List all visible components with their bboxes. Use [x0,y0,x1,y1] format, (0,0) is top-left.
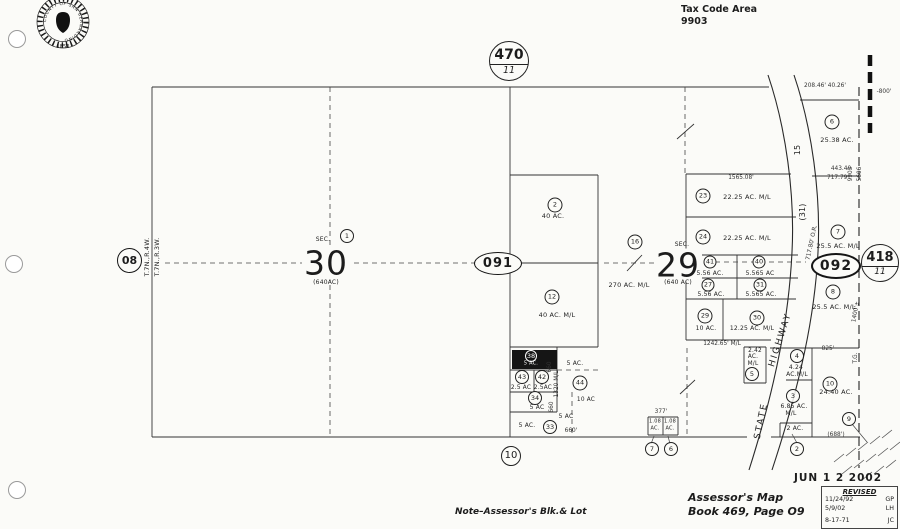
revision-entry: 5/9/02 LH [825,505,894,514]
area-label: AC.M/L [786,372,808,378]
punch-hole [5,255,23,273]
parcel-number-circle: 24 [696,230,711,245]
dimension-label: 825' [822,347,835,353]
revision-initials: JC [888,517,894,526]
map-ref-418-11: 418 11 [861,244,899,282]
parcel-number-circle: 34 [528,391,542,405]
dimension-label: 717.79' [827,176,849,182]
area-label: AC. [650,427,659,432]
assessor-map-title: Assessor's Map Book 469, Page O9 [688,491,805,520]
parcel-number-circle: 41 [704,256,717,269]
parcel-number-circle: 43 [515,370,529,384]
punch-hole [8,481,26,499]
area-label: 2 AC. [787,426,804,432]
parcel-number-circle: 8 [826,285,841,300]
revision-header: REVISED [825,488,894,496]
map-ref-book: 470 [490,47,527,65]
revision-date: 11/24/92 [825,496,853,505]
parcel-number-circle: 2 [790,442,804,456]
area-label: 5 AC. [519,423,536,429]
parcel-number-circle: 33 [543,420,557,434]
area-label: 10 AC. [696,326,717,332]
flag-091: 091 [474,252,522,275]
parcel-number-circle: 6 [825,115,840,130]
sec-label-30: SEC. [316,237,331,243]
revision-initials: LH [886,505,894,514]
dimension-label: 660 [550,401,556,412]
tax-code-value: 9903 [681,16,757,28]
map-ref-page: 11 [874,267,885,277]
section-30-acreage: (640AC) [313,280,339,286]
parcel-number-circle: 23 [696,189,711,204]
dimension-label: 377' [655,410,668,416]
area-label: 5.56 AC. [698,292,725,298]
revision-entry: 11/24/92 GP [825,496,894,505]
map-title-line2: Book 469, Page O9 [688,505,805,519]
parcel-number-circle: 6 [664,442,678,456]
tax-area-west: 9903 [849,167,855,182]
parcel-number-circle: 16 [628,235,643,250]
parcel-number-circle: 7 [831,225,846,240]
revision-date: 5/9/02 [825,505,845,514]
tax-area-east: 5606 [858,167,864,182]
dimension-label: 660 [548,361,554,372]
revision-box: REVISED 11/24/92 GP 5/9/02 LH 8-17-71 JC [821,486,898,529]
area-label: 270 AC. M/L [608,282,649,289]
dimension-label: -800' [877,90,892,96]
area-label: 25.5 AC. M/L [812,304,855,311]
area-label: 5.56 AC. [697,271,724,277]
parcel-number-circle: 31 [754,279,767,292]
parcel-number-circle: 40 [753,256,766,269]
area-label: 5.565 AC. [746,292,777,298]
parcel-number-circle: 12 [545,290,560,305]
tax-code-label: Tax Code Area [681,4,757,16]
highway-route-31: (31) [799,203,807,220]
area-label: 1.08 [664,420,676,425]
dim-1242: 1242.65' M/L [703,342,741,348]
dimension-label: (688') [827,433,844,439]
map-ref-page: 11 [503,65,515,76]
parcel-number-circle: 9 [842,412,856,426]
area-label: 25.38 AC. [820,137,853,144]
punch-hole [8,30,26,48]
area-label: M/L [785,411,796,417]
area-label: 1.08 [649,420,661,425]
block-10-circle: 10 [501,446,521,466]
area-label: 10 AC [577,398,595,404]
township-range-east: T.7N.,R.3W. [154,238,161,277]
parcel-number-circle: 30 [750,311,765,326]
map-ref-08: 08 [117,248,142,273]
revision-initials: GP [885,496,894,505]
area-label: 12.25 AC. M/L [730,326,774,332]
blacked-parcel-area: 5 AC. [524,362,538,367]
flag-092: 092 [811,253,861,279]
parcel-number-circle: 27 [702,279,715,292]
area-label: 5 AC [530,405,545,411]
highway-route-15: 15 [794,145,802,156]
parcel-number-circle: 3 [786,389,800,403]
parcel-number-circle: 7 [645,442,659,456]
dim-1565: 1565.08' [728,176,754,182]
tax-code-area: Tax Code Area 9903 [681,4,757,28]
area-label: 40 AC. [542,213,564,220]
seal-year: 1853 [57,44,70,50]
parcel-number-circle: 2 [548,198,563,213]
area-label: 40 AC. M/L [539,312,576,319]
area-label: AC. [665,427,674,432]
area-label: 5 AC [559,414,574,420]
map-ref-book: 418 [862,250,897,267]
area-label: AC. [748,355,758,361]
dimension-label: T.G. [854,352,860,363]
area-label: 24.40 AC. [819,389,852,396]
parcel-number-circle: 4 [790,349,804,363]
section-29-acreage: (640 AC) [664,280,692,286]
dimension-label: 1320 M/L [555,371,561,398]
township-range-west: T.7N.,R.4W. [144,238,151,277]
assessor-map-page: COUNTY OF SAN BERNARDINO 1853 Tax Code A… [0,0,900,529]
area-label: 5.565 AC [746,271,775,277]
parcel-number-circle: 44 [573,376,588,391]
dimension-label: 208.46' 40.26' [804,84,846,90]
area-label: 5 AC. [567,361,584,367]
assessor-note: Note–Assessor's Blk.& Lot [455,507,587,517]
section-30-number: 30 [302,247,350,280]
area-label: 25.5 AC. M/L [816,243,859,250]
area-label: 22.25 AC. M/L [723,194,771,201]
area-label: 2.5 AC [511,386,531,392]
county-seal: COUNTY OF SAN BERNARDINO 1853 [26,0,100,56]
parcel-number-circle: 5 [745,367,759,381]
revision-entry: 8-17-71 JC [825,517,894,526]
dimension-label: 660' [565,429,578,435]
parcel-1-circle: 1 [340,229,354,243]
parcel-number-circle: 29 [698,309,713,324]
map-ref-470-11: 470 11 [489,41,529,81]
revision-date: 8-17-71 [825,517,850,526]
section-29-number: 29 [654,249,702,282]
area-label: 22.25 AC. M/L [723,235,771,242]
date-stamp: JUN 1 2 2002 [794,472,882,484]
map-title-line1: Assessor's Map [688,491,805,505]
